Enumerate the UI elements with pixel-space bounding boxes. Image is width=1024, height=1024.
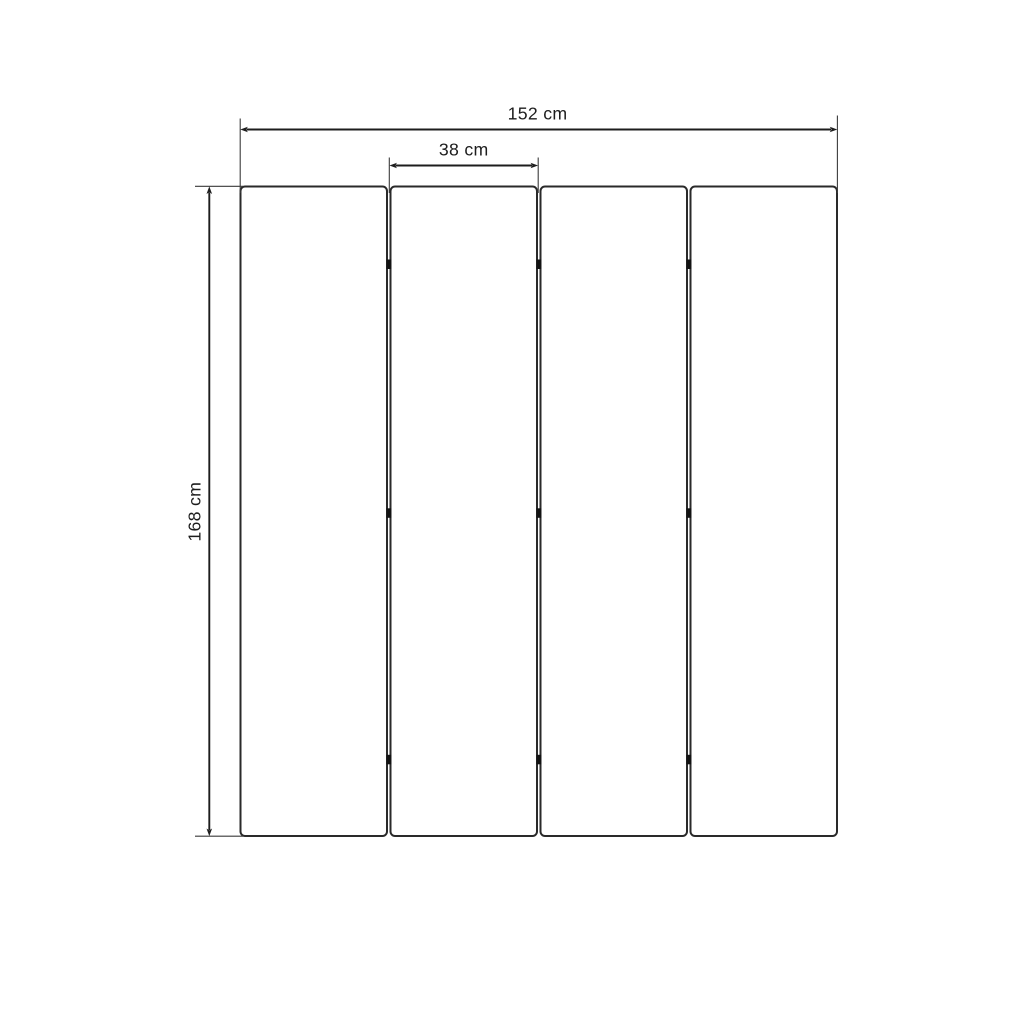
svg-text:152 cm: 152 cm <box>508 104 568 124</box>
svg-text:38 cm: 38 cm <box>439 140 489 160</box>
svg-text:168 cm: 168 cm <box>185 482 205 542</box>
